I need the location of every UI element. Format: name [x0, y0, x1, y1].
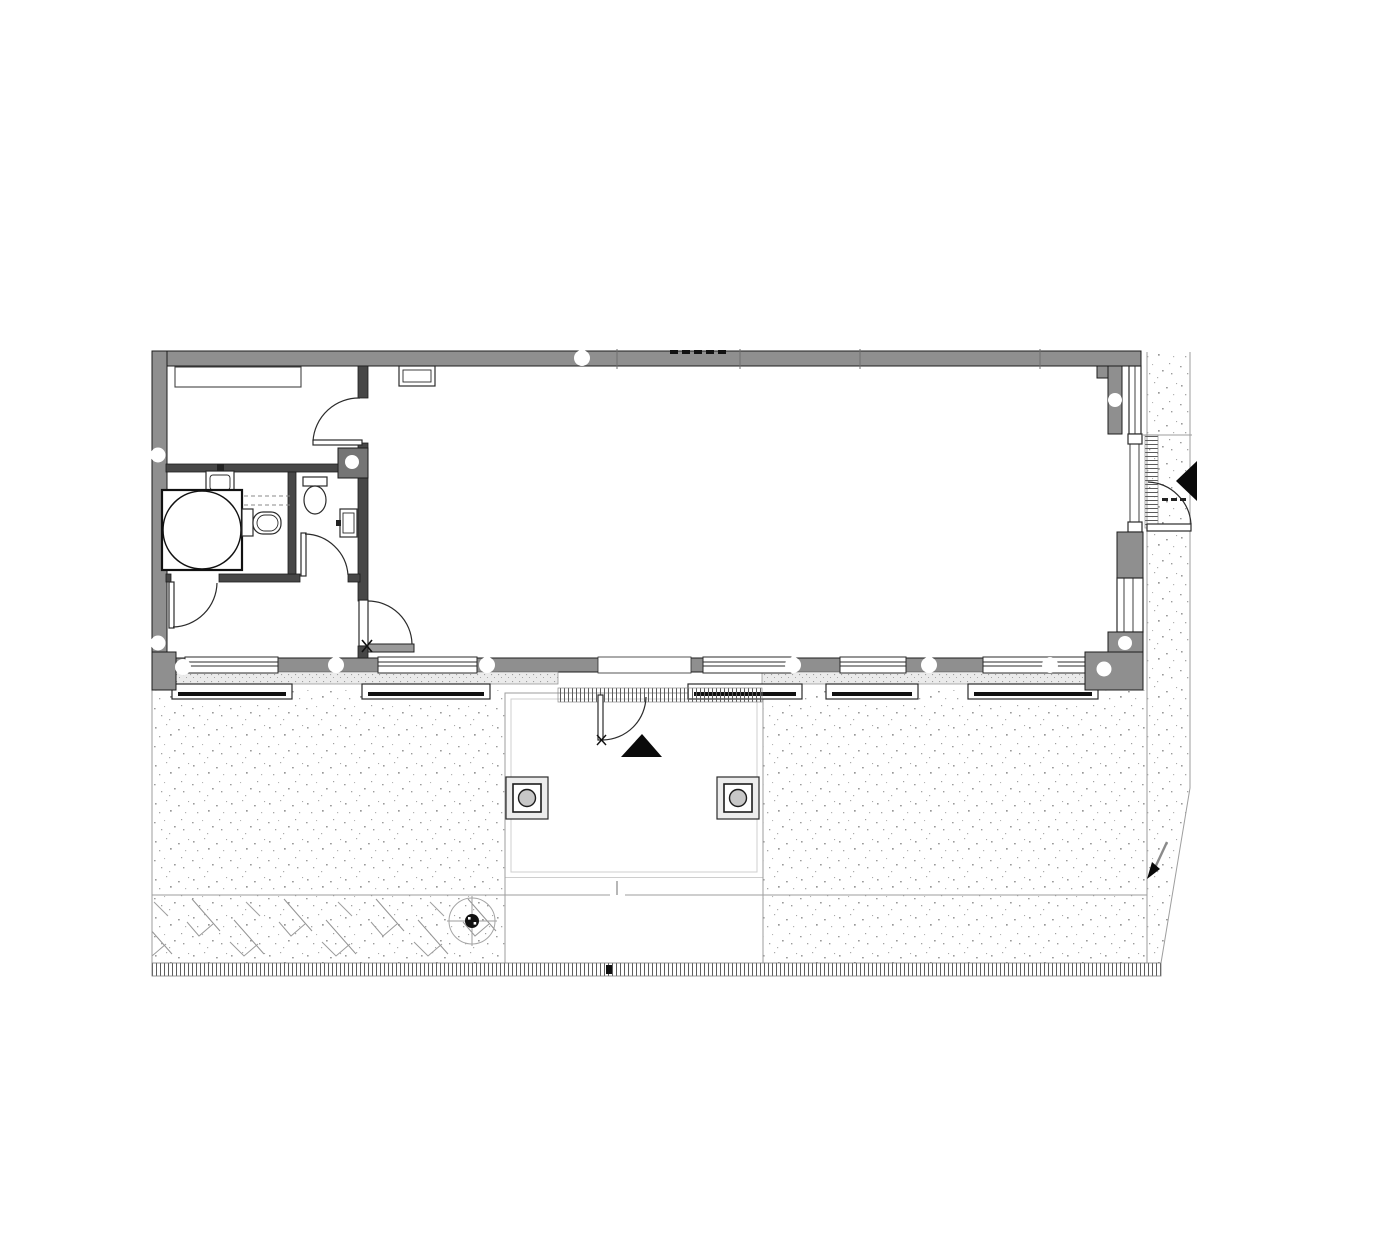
- basin-tap: [217, 464, 224, 471]
- window-sill: [826, 684, 918, 699]
- duct-shaft: [338, 448, 368, 478]
- planting-bed-hatch: [152, 895, 505, 963]
- building-shell: [151, 349, 1142, 690]
- walkway: [505, 878, 763, 963]
- partition-main-mid: [358, 477, 368, 601]
- window-sill: [362, 684, 490, 699]
- floor-plan-page: [0, 0, 1400, 1234]
- patio-door-opening: [598, 657, 691, 673]
- entrance-jamb-top: [1128, 434, 1142, 444]
- lower-left-room-door: [169, 582, 217, 628]
- walkway-surface: [506, 878, 763, 963]
- door-swing: [368, 601, 412, 644]
- transfer-dashed-lines: [244, 496, 290, 505]
- entrance-jamb-bottom: [1128, 522, 1142, 532]
- gravel-band-right-lower: [763, 895, 1147, 963]
- hall-partition-door: [359, 600, 414, 652]
- sill-band-left: [152, 672, 558, 684]
- wall-bath-bottom-c: [348, 574, 360, 582]
- door-leaf: [301, 533, 306, 576]
- terrace-post-left: [506, 777, 548, 819]
- door-frame: [359, 600, 368, 646]
- partition-main-upper: [358, 366, 368, 398]
- scale-strip-marker: [606, 965, 612, 974]
- door-leaf: [169, 582, 174, 628]
- hand-basin-wc: [336, 509, 357, 537]
- floor-plan-drawing: [0, 0, 1400, 1234]
- door-swing: [305, 534, 348, 575]
- east-wall-mid: [1117, 532, 1143, 578]
- wall-bathroom-top: [166, 464, 338, 472]
- door-leaf: [368, 644, 414, 652]
- door-leaf: [598, 695, 603, 740]
- top-left-room-door: [313, 398, 362, 445]
- wall-bath-bottom-b: [219, 574, 300, 582]
- north-wall: [152, 351, 1141, 366]
- entrance-door-leaf: [1147, 524, 1191, 531]
- southwest-corner: [152, 652, 176, 690]
- patio-door-threshold: [558, 688, 762, 702]
- door-swing: [313, 398, 360, 441]
- gravel-ground-right: [763, 690, 1147, 895]
- radiator: [399, 366, 435, 386]
- scale-tick-strip: [152, 963, 1161, 976]
- entrance-glazing-lines: [1130, 444, 1139, 522]
- wc-basin-tap: [336, 520, 341, 526]
- patio-terrace: [505, 693, 763, 878]
- toilet-bathroom: [242, 509, 281, 536]
- terrace-post-right: [717, 777, 759, 819]
- wall-bath-wc-divider: [288, 472, 296, 574]
- gravel-ground-left: [152, 690, 505, 895]
- wc-door: [301, 533, 348, 576]
- wall-bath-bottom-a: [166, 574, 171, 582]
- door-swing: [173, 583, 217, 627]
- counter: [175, 367, 301, 387]
- entrance-step-hatch: [1145, 435, 1158, 528]
- door-leaf: [313, 440, 362, 445]
- planting-bed: [152, 895, 505, 963]
- entrance-dash-marks: [1162, 498, 1186, 501]
- window-sill: [968, 684, 1098, 699]
- window-sill: [172, 684, 292, 699]
- east-window: [1117, 578, 1143, 632]
- toilet-wc: [303, 477, 327, 514]
- southeast-corner: [1085, 652, 1143, 690]
